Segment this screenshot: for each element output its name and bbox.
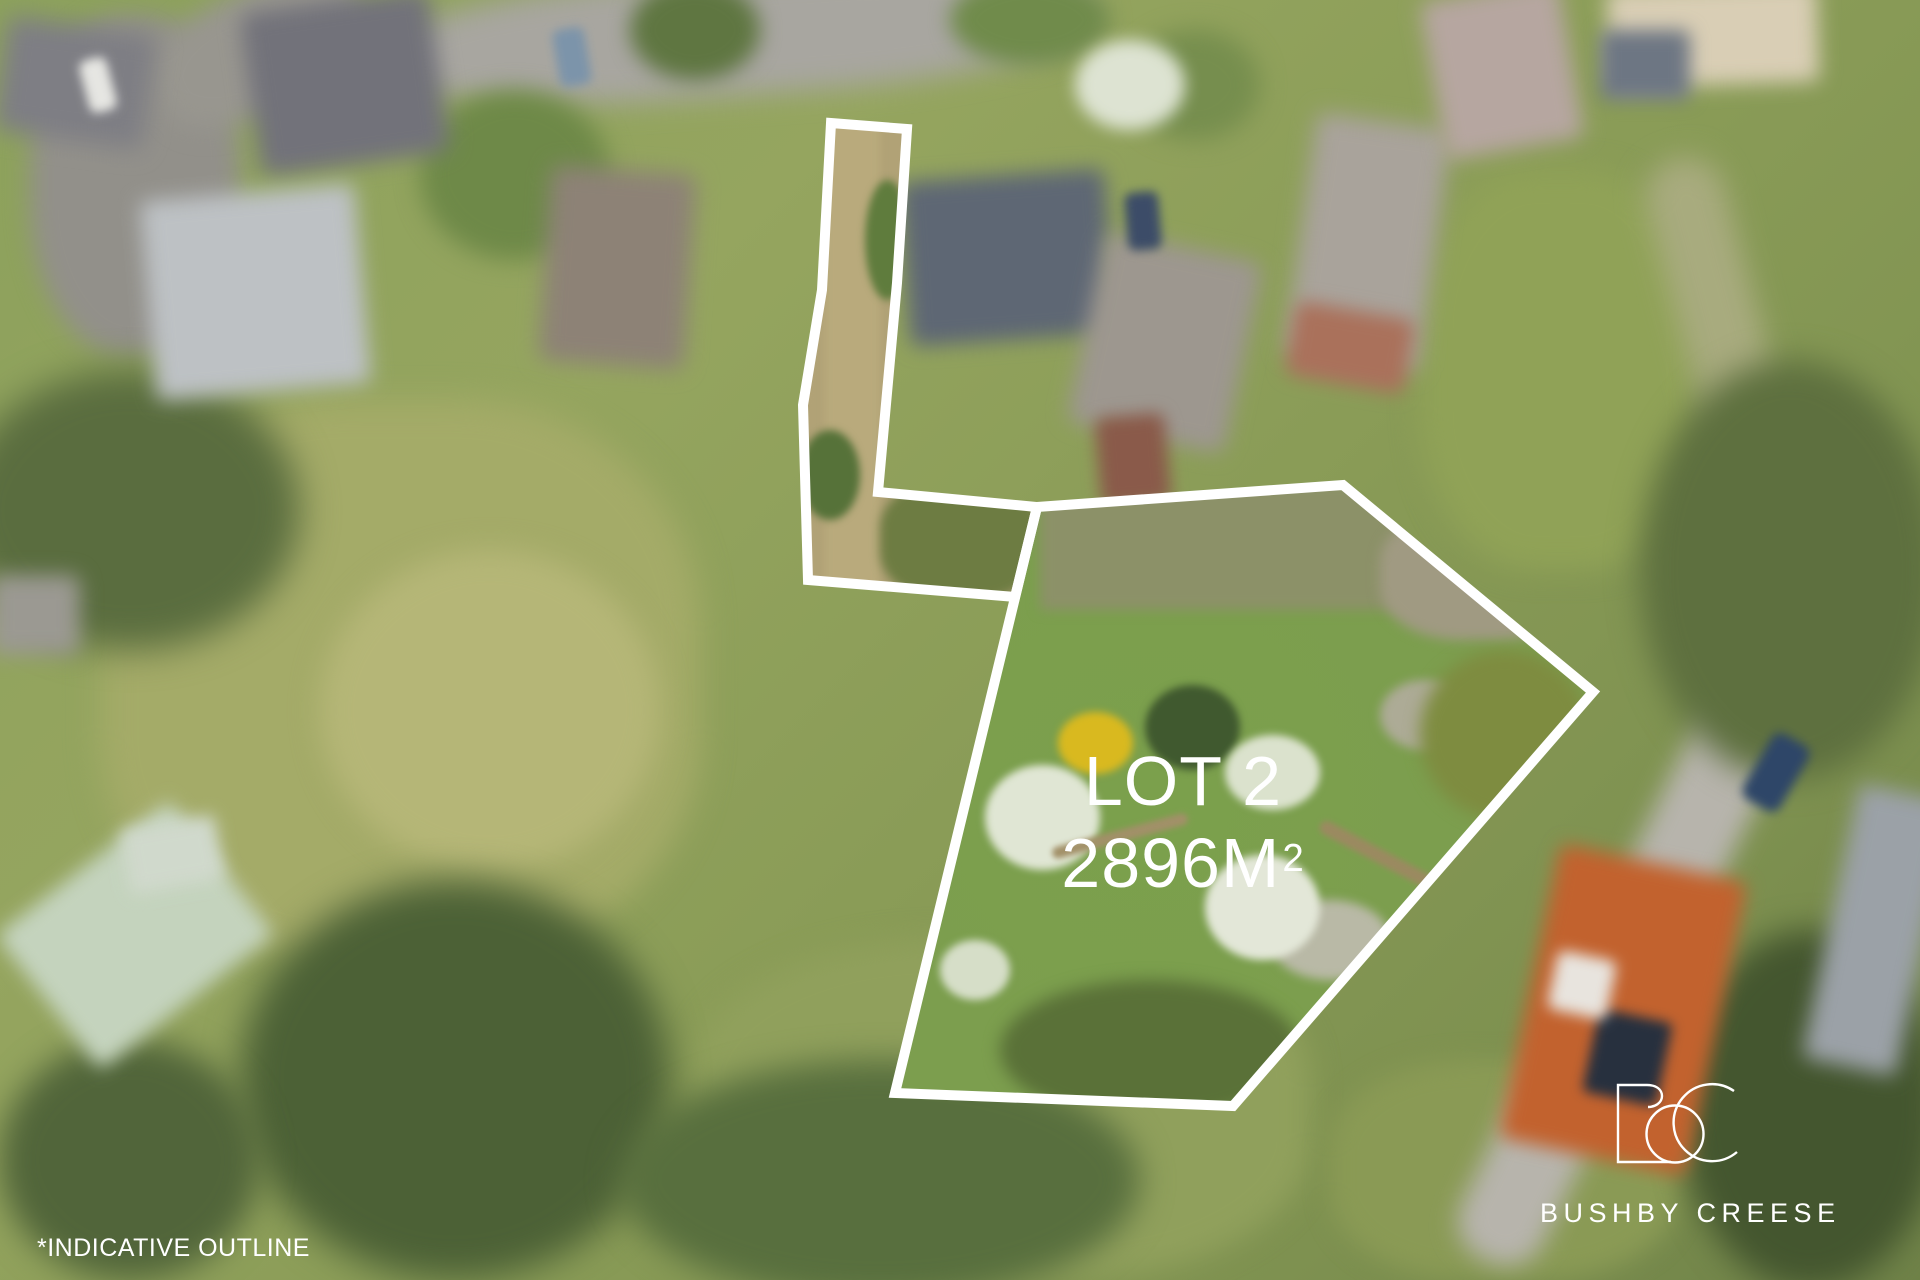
monogram-letter-b	[1618, 1085, 1671, 1162]
scenery-paving	[0, 575, 80, 655]
scenery-brick-wall	[1094, 412, 1172, 508]
scenery-blossom-tree	[1075, 40, 1185, 130]
scenery-blossom-tree	[940, 940, 1010, 1000]
scenery-building	[140, 183, 372, 401]
scenery-bush	[800, 430, 860, 520]
scenery-scrub	[880, 480, 1040, 600]
scenery-roof	[899, 168, 1115, 347]
bc-monogram-icon	[1595, 1070, 1775, 1180]
scenery-trees	[240, 880, 670, 1280]
scenery-field	[320, 550, 660, 870]
monogram-letter-c	[1674, 1084, 1737, 1161]
scenery-trees	[1640, 360, 1920, 780]
scenery-roof	[538, 165, 696, 370]
agency-branding: BUSHBY CREESE	[1540, 1070, 1830, 1229]
scenery-dirt-track	[825, 120, 880, 600]
scenery-roof	[1419, 0, 1585, 161]
scenery-olive-bush	[1420, 650, 1590, 820]
lot-label: LOT 2	[1061, 740, 1304, 822]
lot-area-exponent: 2	[1282, 837, 1304, 880]
scenery-roof	[239, 0, 450, 177]
scenery-car	[1124, 191, 1163, 252]
scenery-paving	[1600, 30, 1690, 100]
scenery-roof-patch	[1546, 949, 1617, 1020]
indicative-outline-footnote: *INDICATIVE OUTLINE	[37, 1234, 310, 1263]
agency-name: BUSHBY CREESE	[1540, 1198, 1830, 1229]
aerial-photo: LOT 2 2896M2 *INDICATIVE OUTLINE BUSHBY …	[0, 0, 1920, 1280]
lot-area: 2896M2	[1061, 822, 1304, 916]
lot-label-block: LOT 2 2896M2	[1061, 740, 1304, 916]
scenery-roof	[0, 15, 157, 150]
